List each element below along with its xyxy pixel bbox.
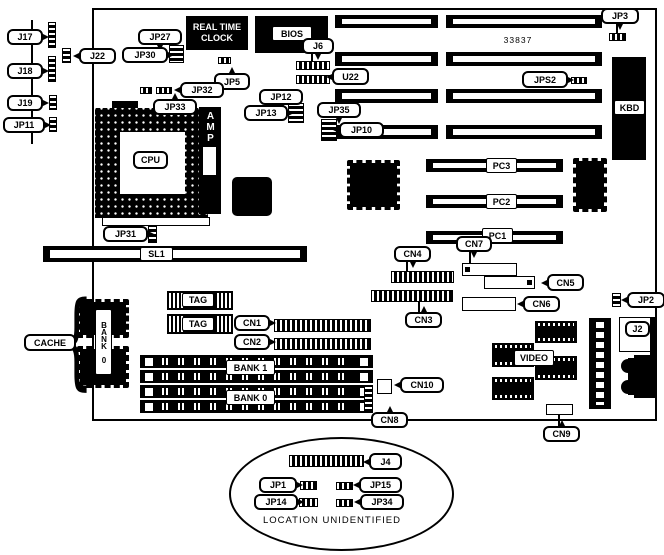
simm-slot-1-latch-r <box>359 357 369 367</box>
simm-slot-2-latch-r <box>359 372 369 382</box>
vrm-amp-module-text: AMP <box>205 111 215 144</box>
vrm-amp-module-pad <box>203 147 216 175</box>
jp3-callout: JP3 <box>601 8 639 24</box>
cn6-callout-pointer <box>517 300 525 308</box>
j19-callout-text: J19 <box>17 98 32 108</box>
cn4-connector <box>391 271 454 283</box>
jp5-callout-pointer <box>228 67 236 75</box>
cn1-connector <box>274 319 371 332</box>
tag-chip-2-label-text: TAG <box>189 319 207 329</box>
u22-callout-text: U22 <box>342 72 359 82</box>
jp13-callout-text: JP13 <box>255 108 276 118</box>
j19-jumper <box>49 95 57 110</box>
rtc-chip-text: REAL TIME CLOCK <box>193 22 241 45</box>
isa-slot-1-right <box>446 15 602 28</box>
cn6-callout-text: CN6 <box>532 299 550 309</box>
jp10-callout: JP10 <box>339 122 384 138</box>
vrm-amp-module: AMP <box>199 107 221 214</box>
j2-edge-fill <box>650 317 657 355</box>
cn4-callout-pointer <box>409 260 417 268</box>
j18-callout: J18 <box>7 63 43 79</box>
j19-callout-pointer <box>41 99 49 107</box>
isa-slot-3-left <box>335 89 438 103</box>
cn10-callout-pointer <box>394 381 402 389</box>
simm-slot-4-latch-l <box>144 402 154 412</box>
cpu-label: CPU <box>133 151 168 169</box>
bank1-label: BANK 1 <box>226 360 275 375</box>
jp13-callout: JP13 <box>244 105 288 121</box>
simm-slot-1-latch-l <box>144 357 154 367</box>
chip-qfp-right <box>573 158 607 212</box>
unidentified-note: LOCATION UNIDENTIFIED <box>252 513 412 527</box>
jp11-callout-pointer <box>43 121 51 129</box>
cn2-callout: CN2 <box>234 334 270 350</box>
cn4-callout: CN4 <box>394 246 431 262</box>
jp1-callout-text: JP1 <box>270 480 286 490</box>
j4-callout-text: J4 <box>380 457 390 467</box>
cn2-connector <box>274 338 371 350</box>
kbd-label: KBD <box>614 100 645 115</box>
cache-bank0-label: BANK 0 <box>95 309 112 375</box>
jp12-callout: JP12 <box>259 89 303 105</box>
jp11-callout: JP11 <box>3 117 45 133</box>
jp13-callout-pointer <box>286 109 294 117</box>
jp11-callout-text: JP11 <box>14 120 35 130</box>
chip-small <box>232 177 272 216</box>
cn1-callout-text: CN1 <box>243 318 261 328</box>
cn10-callout: CN10 <box>400 377 444 393</box>
j18-jumper <box>48 56 56 82</box>
diagram-canvas: 33837KBDJP3JPS2REAL TIME CLOCKBIOSJ6U22J… <box>0 0 664 555</box>
jps2-callout: JPS2 <box>522 71 568 88</box>
jp14-callout-text: JP14 <box>265 497 286 507</box>
jp32-jumper-1 <box>140 87 152 94</box>
j2-label: J2 <box>625 321 650 337</box>
j4-callout: J4 <box>369 453 402 470</box>
cn5-callout-text: CN5 <box>556 278 574 288</box>
jps2-callout-text: JPS2 <box>534 75 556 85</box>
dsub-connector-bump-1 <box>621 359 635 373</box>
jp31-callout-pointer <box>146 230 154 238</box>
cn6-callout: CN6 <box>523 296 560 312</box>
tag-chip-2-label: TAG <box>182 317 214 331</box>
cn8-callout-text: CN8 <box>380 415 398 425</box>
isa-slot-1-left <box>335 15 438 28</box>
jp34-callout-text: JP34 <box>371 497 392 507</box>
jp15-callout-pointer <box>353 481 361 489</box>
cn7-callout: CN7 <box>456 236 492 252</box>
pc2-label-text: PC2 <box>493 197 511 207</box>
jp2-callout: JP2 <box>627 292 664 308</box>
board-number: 33837 <box>494 34 542 45</box>
j19-callout: J19 <box>7 95 43 111</box>
jp5-callout-text: JP5 <box>224 77 240 87</box>
cn7-connector-pin1-mark <box>465 267 470 272</box>
jp1-callout: JP1 <box>259 477 297 493</box>
u22-connector-row2 <box>296 75 330 84</box>
u22-callout-pointer <box>326 73 334 81</box>
bank0-label: BANK 0 <box>226 390 275 405</box>
j4-connector <box>289 455 364 467</box>
jp33-callout: JP33 <box>153 99 197 115</box>
cn2-callout-pointer <box>268 338 276 346</box>
cn3-callout: CN3 <box>405 312 442 328</box>
kbd-label-text: KBD <box>620 103 640 113</box>
cache-callout: CACHE <box>24 334 76 351</box>
jp30-callout: JP30 <box>122 47 168 63</box>
jp2-callout-text: JP2 <box>638 295 654 305</box>
cn4-callout-text: CN4 <box>403 249 421 259</box>
j17-callout-text: J17 <box>17 32 32 42</box>
jp31-callout-text: JP31 <box>115 229 136 239</box>
jp10-callout-pointer <box>333 126 341 134</box>
jp35-callout-text: JP35 <box>328 105 349 115</box>
jp1-callout-pointer <box>295 481 303 489</box>
rtc-chip: REAL TIME CLOCK <box>186 16 248 50</box>
bank0-label-text: BANK 0 <box>234 393 268 403</box>
jp5-jumper <box>218 57 231 64</box>
chip-qfp-center <box>347 160 400 210</box>
unidentified-note-text: LOCATION UNIDENTIFIED <box>263 515 401 526</box>
u22-callout: U22 <box>332 68 369 85</box>
cn5-connector <box>484 276 535 289</box>
jp34-jumper <box>336 499 353 507</box>
jp30-callout-text: JP30 <box>134 50 155 60</box>
cn7-callout-pointer <box>470 250 478 258</box>
j18-callout-text: J18 <box>17 66 32 76</box>
j17-callout: J17 <box>7 29 43 45</box>
jps2-callout-pointer <box>566 76 574 84</box>
j4-callout-pointer <box>363 458 371 466</box>
jp34-callout: JP34 <box>360 494 404 510</box>
cn9-callout-pointer <box>558 420 566 428</box>
j6-callout: J6 <box>302 38 334 54</box>
jp27-callout-text: JP27 <box>149 32 170 42</box>
jp10-callout-text: JP10 <box>351 125 372 135</box>
cn6-connector <box>462 297 516 311</box>
pc2-label: PC2 <box>486 194 517 209</box>
cn8-callout-pointer <box>386 406 394 414</box>
cn1-callout-pointer <box>268 319 276 327</box>
jp15-jumper <box>336 482 353 490</box>
sl1-label: SL1 <box>140 247 173 261</box>
j22-callout-pointer <box>73 52 81 60</box>
jp33-callout-text: JP33 <box>164 102 185 112</box>
jp3-callout-pointer <box>616 22 624 30</box>
video-label: VIDEO <box>514 350 554 366</box>
simm-slot-3-latch-l <box>144 387 154 397</box>
cn10-callout-text: CN10 <box>410 380 433 390</box>
j22-callout: J22 <box>79 48 116 64</box>
jp2-jumper <box>612 293 621 307</box>
jp32-callout: JP32 <box>180 82 224 98</box>
cn8-connector <box>364 386 373 413</box>
jp2-callout-pointer <box>621 296 629 304</box>
tag-chip-1-label: TAG <box>182 293 214 307</box>
dsub-connector-bump-2 <box>621 380 635 394</box>
cn7-callout-text: CN7 <box>465 239 483 249</box>
power-connector <box>589 318 611 409</box>
j6-callout-pointer <box>314 52 322 60</box>
jp31-callout: JP31 <box>103 226 148 242</box>
video-ram-chip-4 <box>492 377 534 400</box>
jp15-callout-text: JP15 <box>370 480 391 490</box>
j6-callout-text: J6 <box>313 41 323 51</box>
jp27-callout: JP27 <box>138 29 182 45</box>
j22-callout-text: J22 <box>90 51 105 61</box>
bios-label-text: BIOS <box>281 29 303 39</box>
cache-bank0-label-text: BANK 0 <box>100 321 108 363</box>
cn9-callout-text: CN9 <box>552 429 570 439</box>
j18-callout-pointer <box>41 67 49 75</box>
jp32-callout-text: JP32 <box>191 85 212 95</box>
isa-slot-2-right <box>446 52 602 66</box>
cn3-callout-text: CN3 <box>414 315 432 325</box>
cn3-callout-pointer <box>420 306 428 314</box>
bank1-label-text: BANK 1 <box>234 363 268 373</box>
j17-jumper <box>48 22 56 48</box>
cn9-connector <box>546 404 573 415</box>
jp30-callout-pointer <box>166 51 174 59</box>
cn1-callout: CN1 <box>234 315 270 331</box>
jp15-callout: JP15 <box>359 477 402 493</box>
jp12-callout-text: JP12 <box>270 92 291 102</box>
cn5-callout: CN5 <box>547 274 584 291</box>
isa-slot-3-right <box>446 89 602 103</box>
cn7-connector <box>462 263 517 276</box>
jp3-callout-text: JP3 <box>612 11 628 21</box>
pc3-label-text: PC3 <box>493 161 511 171</box>
jp3-jumper <box>609 33 626 41</box>
jp32-jumper-2 <box>156 87 172 94</box>
cache-callout-text: CACHE <box>34 338 66 348</box>
cpu-socket-bottom-tab <box>102 217 210 226</box>
jp14-callout-pointer <box>296 498 304 506</box>
simm-slot-2-latch-l <box>144 372 154 382</box>
cn3-connector <box>371 290 453 302</box>
cn5-callout-pointer <box>541 279 549 287</box>
video-label-text: VIDEO <box>520 353 548 363</box>
jp33-callout-pointer <box>171 93 179 101</box>
cpu-label-text: CPU <box>141 155 160 165</box>
pc3-label: PC3 <box>486 158 517 173</box>
cn8-callout: CN8 <box>371 412 408 428</box>
sl1-slot <box>43 246 307 262</box>
cn9-callout: CN9 <box>543 426 580 442</box>
video-ram-chip-1 <box>535 321 577 343</box>
isa-slot-4-right <box>446 125 602 139</box>
u22-connector-row1 <box>296 61 330 70</box>
jp35-callout: JP35 <box>317 102 361 118</box>
isa-slot-2-left <box>335 52 438 66</box>
tag-chip-1-label-text: TAG <box>189 295 207 305</box>
jp14-callout: JP14 <box>254 494 298 510</box>
cn2-callout-text: CN2 <box>243 337 261 347</box>
jp34-callout-pointer <box>354 498 362 506</box>
j22-jumper <box>62 48 71 63</box>
j17-callout-pointer <box>41 33 49 41</box>
cn10-connector <box>377 379 392 394</box>
sl1-label-text: SL1 <box>148 249 165 259</box>
j2-label-text: J2 <box>632 324 642 334</box>
board-number-text: 33837 <box>504 35 533 45</box>
cn5-connector-pin1-mark <box>527 280 532 285</box>
